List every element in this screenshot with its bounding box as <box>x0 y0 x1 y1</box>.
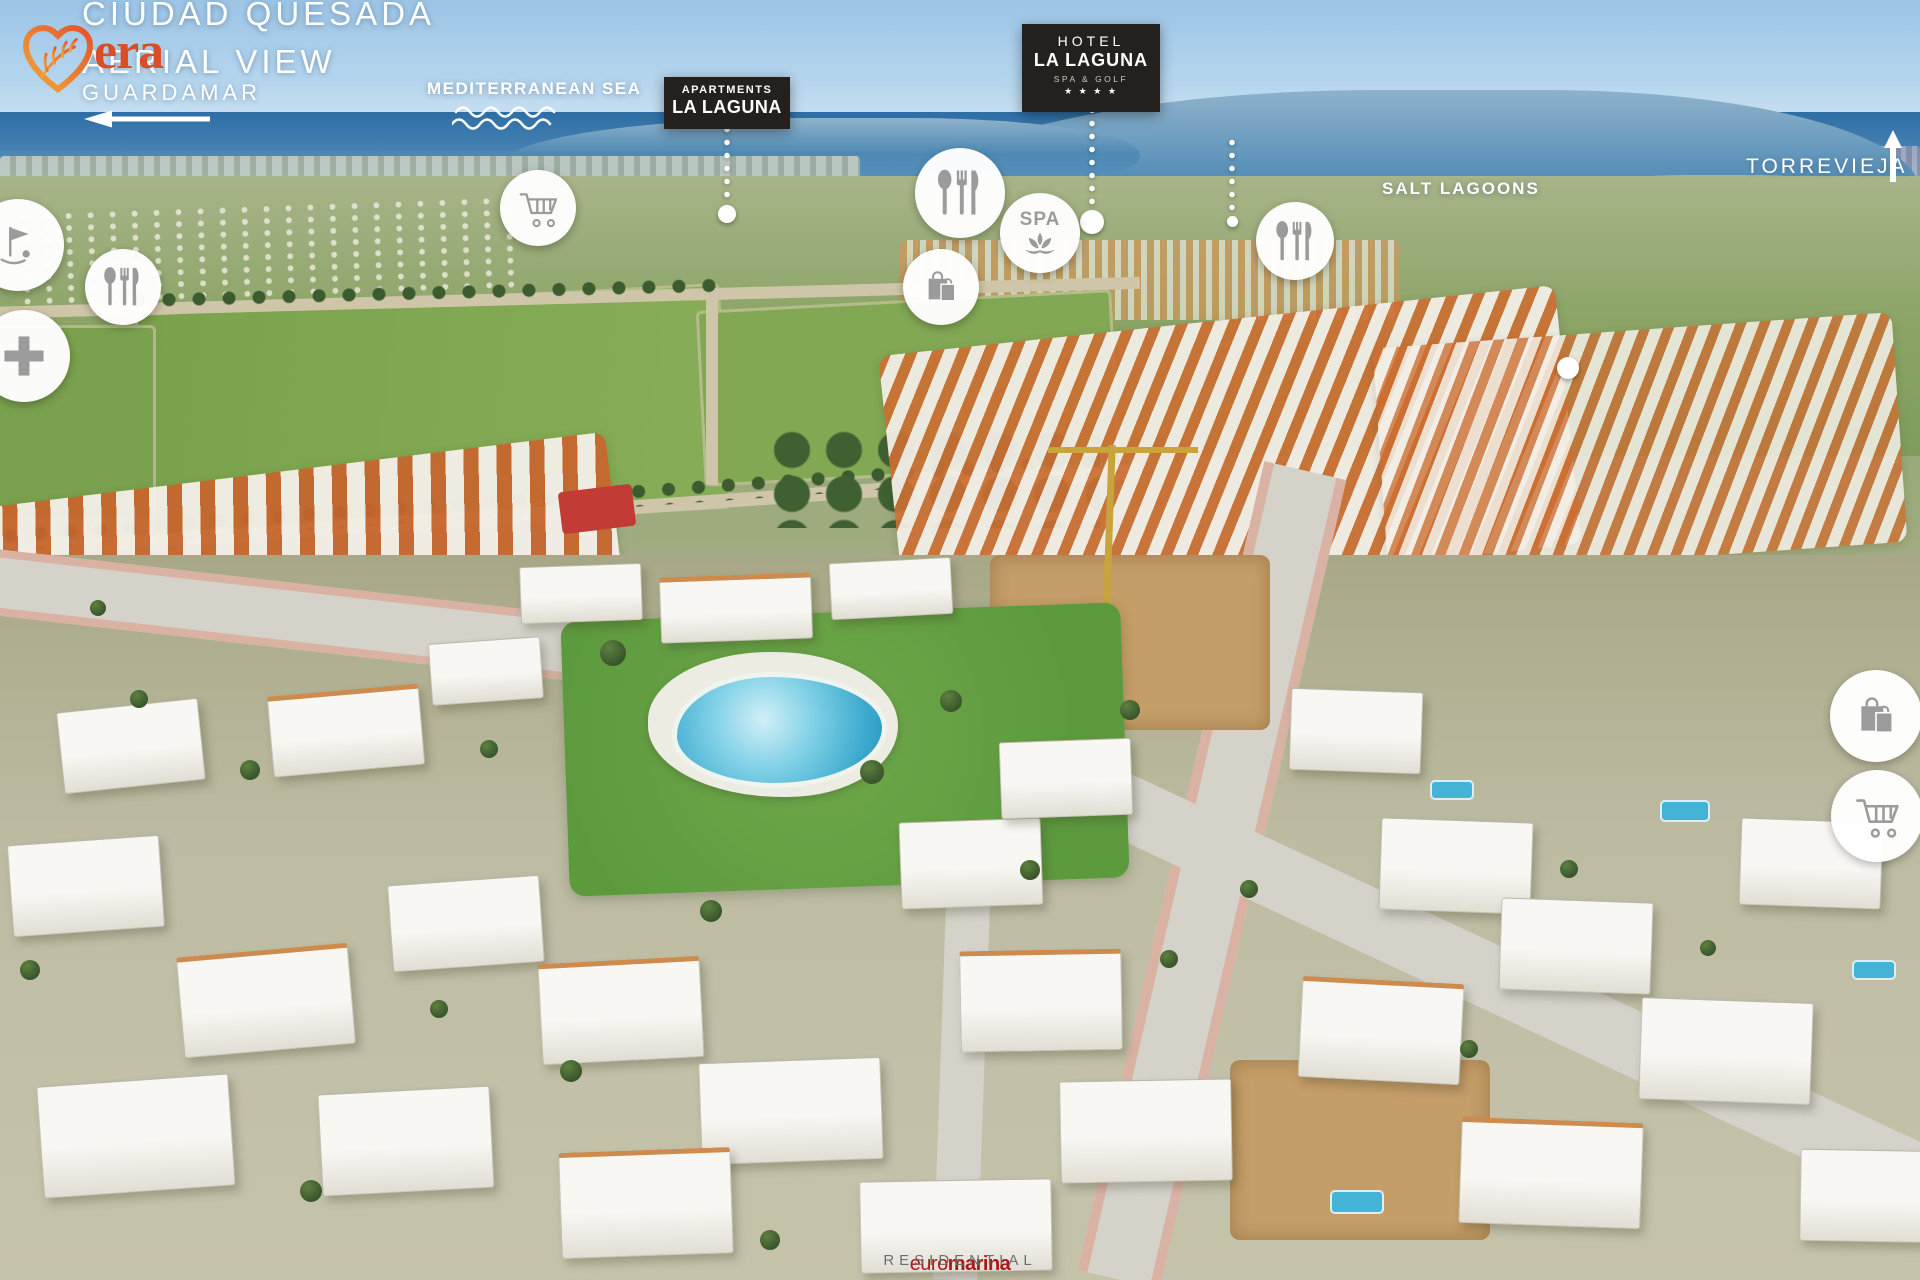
tree <box>430 1000 448 1018</box>
tree <box>560 1060 582 1082</box>
tree <box>1460 1040 1478 1058</box>
location-dot <box>1080 210 1104 234</box>
restaurant-icon <box>100 264 146 310</box>
tree <box>940 690 962 712</box>
hotel-stars: ★ ★ ★ ★ <box>1022 86 1160 97</box>
torrevieja-arrow-icon <box>1882 130 1904 182</box>
rural-road <box>706 295 718 485</box>
tree <box>1560 860 1578 878</box>
supermarket-marker <box>500 170 576 246</box>
heart-palm-icon <box>12 10 104 102</box>
hotel-line-2: LA LAGUNA <box>1022 50 1160 71</box>
building <box>176 943 356 1059</box>
supermarket-marker <box>1831 770 1920 862</box>
townhouse-rows <box>1373 312 1908 578</box>
villa-pool <box>1430 780 1474 800</box>
apartments-line-1: APARTMENTS <box>664 84 790 96</box>
tree <box>760 1230 780 1250</box>
tree <box>1700 940 1716 956</box>
hotel-line-1: HOTEL <box>1022 33 1160 49</box>
building <box>1638 997 1813 1105</box>
restaurant-marker <box>85 249 161 325</box>
restaurant-marker <box>915 148 1005 238</box>
leader-line <box>1229 139 1235 215</box>
tree <box>1160 950 1178 968</box>
restaurant-icon <box>933 166 987 220</box>
vera-subtitle: RESIDENTIAL <box>0 1252 1920 1269</box>
building <box>959 949 1123 1053</box>
villa-pool <box>1660 800 1710 822</box>
spa-icon <box>1020 231 1060 257</box>
vera-wordmark: era <box>94 22 163 81</box>
building <box>7 835 165 937</box>
spa-label: SPA <box>1020 210 1061 229</box>
tree <box>90 600 106 616</box>
tree <box>130 690 148 708</box>
villa-pool <box>1852 960 1896 980</box>
restaurant-marker <box>1256 202 1334 280</box>
spa-marker: SPA <box>1000 193 1080 273</box>
building <box>537 956 704 1065</box>
building <box>558 1147 734 1259</box>
location-dot <box>1557 357 1579 379</box>
building <box>1799 1149 1920 1244</box>
tree <box>1240 880 1258 898</box>
tree <box>860 760 884 784</box>
shopping-marker <box>903 249 979 325</box>
building <box>1297 976 1464 1085</box>
building <box>428 636 544 706</box>
building <box>829 557 954 620</box>
guardamar-arrow-icon <box>82 108 210 130</box>
waves-icon <box>452 104 564 132</box>
aerial-view-photo: CIUDAD QUESADA AERIAL VIEW GUARDAMAR MED… <box>0 0 1920 1280</box>
building <box>36 1073 235 1198</box>
shopping-cart-icon <box>1851 790 1903 842</box>
hotel-line-3: SPA & GOLF <box>1022 74 1160 84</box>
location-dot <box>718 205 736 223</box>
building <box>1289 688 1424 775</box>
restaurant-icon <box>1272 218 1319 265</box>
location-dot <box>1227 216 1238 227</box>
building <box>1059 1079 1233 1184</box>
leader-line <box>1089 107 1095 209</box>
tree <box>480 740 498 758</box>
hotel-la-laguna-callout: HOTEL LA LAGUNA SPA & GOLF ★ ★ ★ ★ <box>1022 24 1160 112</box>
building <box>267 684 425 778</box>
tree <box>20 960 40 980</box>
building <box>56 698 206 794</box>
apartments-la-laguna-callout: APARTMENTS LA LAGUNA <box>664 77 790 129</box>
tree <box>1020 860 1040 880</box>
guardamar-label: GUARDAMAR <box>82 80 261 106</box>
mediterranean-sea-label: MEDITERRANEAN SEA <box>427 79 641 99</box>
building <box>519 563 643 624</box>
building <box>387 875 545 972</box>
apartments-line-2: LA LAGUNA <box>664 97 790 118</box>
red-roof-building <box>558 484 637 535</box>
tree <box>300 1180 322 1202</box>
crane-arm <box>1048 447 1198 453</box>
building <box>1458 1117 1644 1229</box>
shopping-bag-icon <box>1850 690 1902 742</box>
leader-line <box>724 126 730 206</box>
golf-icon <box>0 219 44 271</box>
tree <box>1120 700 1140 720</box>
shopping-cart-icon <box>515 185 561 231</box>
shopping-bag-icon <box>919 265 963 309</box>
tree <box>240 760 260 780</box>
shopping-marker <box>1830 670 1920 762</box>
medical-cross-icon <box>0 331 49 381</box>
building <box>317 1086 494 1197</box>
tree <box>700 900 722 922</box>
building <box>999 738 1134 820</box>
salt-lagoons-label: SALT LAGOONS <box>1382 179 1540 199</box>
building <box>1498 897 1653 994</box>
building <box>659 572 813 643</box>
villa-pool <box>1330 1190 1384 1214</box>
tree <box>600 640 626 666</box>
